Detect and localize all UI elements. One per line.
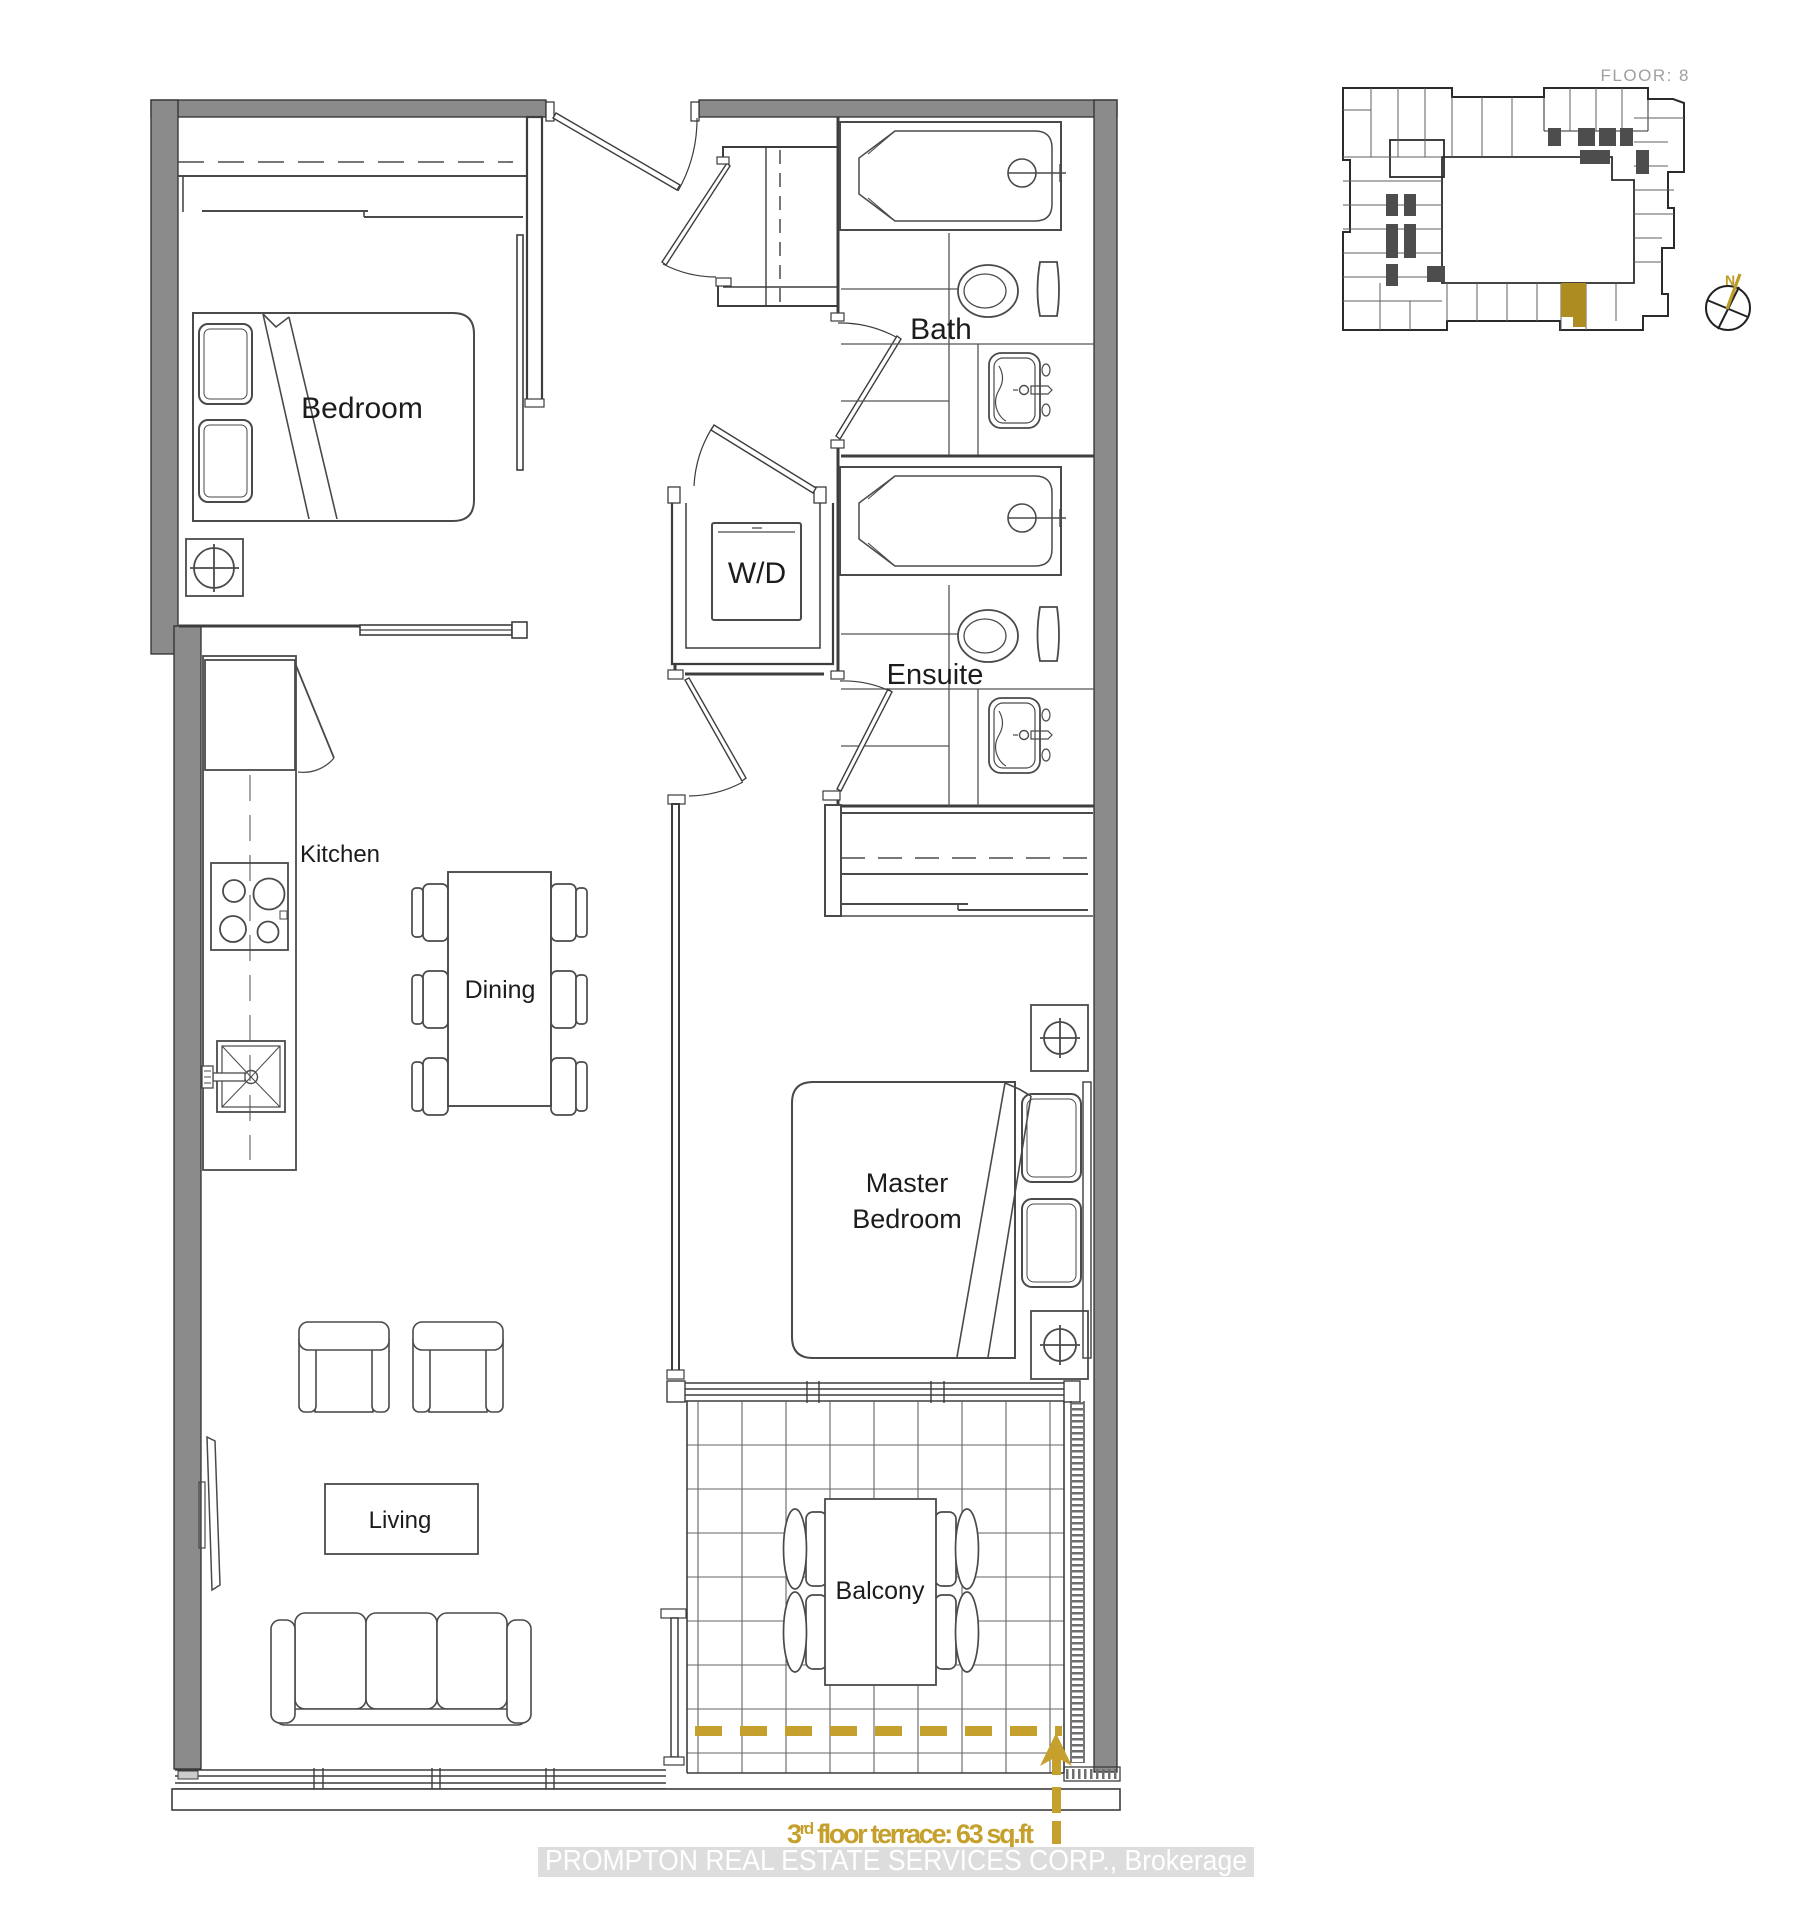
svg-text:Bedroom: Bedroom — [852, 1204, 962, 1234]
svg-text:Dining: Dining — [465, 976, 536, 1004]
svg-text:N: N — [1725, 272, 1735, 288]
svg-text:Ensuite: Ensuite — [887, 659, 984, 691]
svg-text:Bedroom: Bedroom — [301, 392, 423, 425]
svg-text:Bath: Bath — [910, 313, 972, 346]
svg-text:W/D: W/D — [728, 557, 786, 590]
svg-text:Master: Master — [866, 1168, 949, 1198]
svg-text:Balcony: Balcony — [836, 1577, 925, 1605]
svg-text:Kitchen: Kitchen — [300, 841, 380, 868]
svg-text:FLOOR: 8: FLOOR: 8 — [1601, 66, 1690, 85]
svg-text:Living: Living — [369, 1507, 432, 1534]
svg-text:PROMPTON REAL ESTATE SERVICES: PROMPTON REAL ESTATE SERVICES CORP., Bro… — [545, 1845, 1247, 1877]
